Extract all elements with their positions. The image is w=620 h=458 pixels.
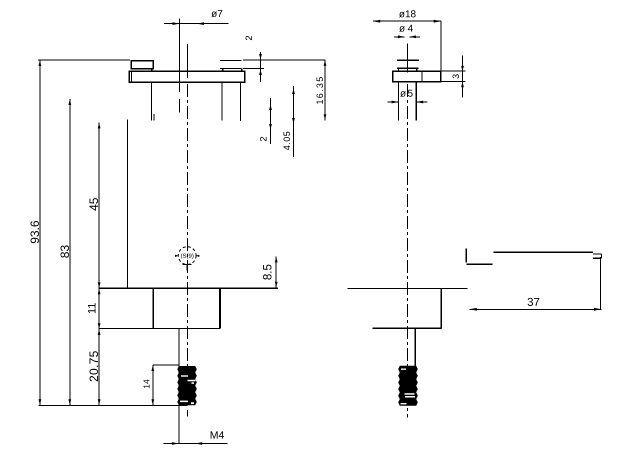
svg-text:83: 83	[58, 245, 72, 259]
svg-text:2: 2	[259, 136, 270, 141]
svg-text:M4: M4	[210, 430, 225, 442]
svg-text:ø7: ø7	[211, 9, 223, 20]
svg-text:4.05: 4.05	[282, 131, 292, 151]
svg-text:3: 3	[451, 74, 461, 79]
svg-text:11: 11	[87, 303, 99, 314]
svg-text:20.75: 20.75	[87, 350, 101, 382]
svg-text:37: 37	[527, 297, 540, 309]
svg-text:ø5: ø5	[400, 89, 415, 100]
svg-text:93.6: 93.6	[28, 220, 42, 244]
svg-text:14: 14	[141, 379, 151, 389]
svg-text:ø4: ø4	[399, 24, 416, 35]
svg-text:16.35: 16.35	[315, 75, 325, 104]
svg-text:2: 2	[244, 35, 255, 40]
svg-text:ø18: ø18	[399, 9, 417, 20]
svg-text:8.5: 8.5	[263, 264, 275, 280]
svg-text:(S(9): (S(9)	[181, 254, 194, 260]
svg-text:45: 45	[87, 197, 101, 211]
